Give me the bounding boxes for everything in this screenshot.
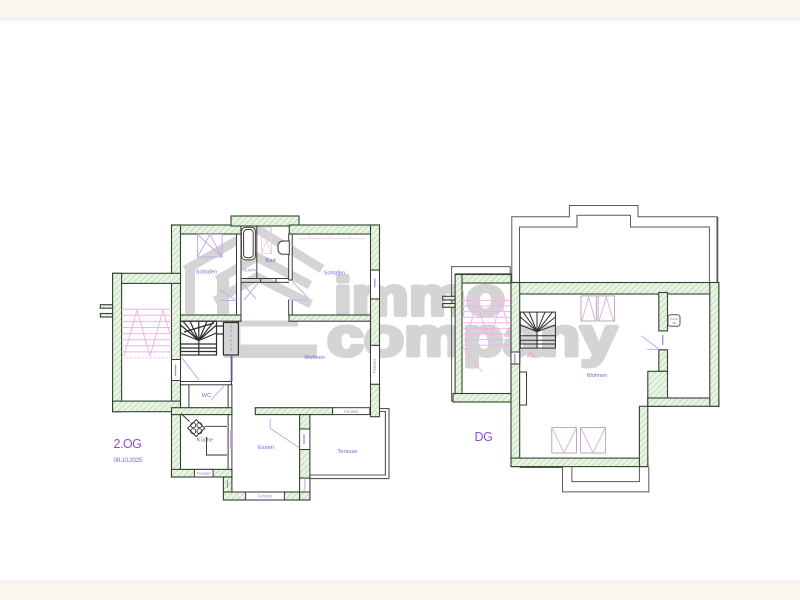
svg-text:Terasse: Terasse (337, 449, 357, 455)
svg-text:Fenster: Fenster (258, 494, 273, 499)
svg-text:Fenster: Fenster (197, 471, 212, 476)
svg-text:Fenster: Fenster (372, 358, 377, 373)
svg-text:Wohnen: Wohnen (587, 373, 607, 379)
svg-text:Fenster: Fenster (344, 409, 359, 414)
svg-text:DG: DG (475, 430, 493, 444)
svg-text:Bad: Bad (265, 258, 275, 264)
svg-text:Dusche: Dusche (243, 268, 258, 273)
svg-text:2.OG: 2.OG (114, 437, 142, 451)
svg-text:Wohnen: Wohnen (304, 355, 324, 361)
svg-text:Essen: Essen (258, 445, 274, 451)
svg-text:nis: nis (672, 321, 676, 325)
svg-text:08.10.2025: 08.10.2025 (114, 457, 143, 464)
svg-text:Schlafen: Schlafen (196, 269, 217, 275)
svg-text:Schlafen: Schlafen (324, 270, 345, 276)
svg-text:WC: WC (202, 393, 212, 399)
svg-text:Küche: Küche (197, 438, 213, 444)
svg-text:Fenster: Fenster (303, 478, 307, 491)
